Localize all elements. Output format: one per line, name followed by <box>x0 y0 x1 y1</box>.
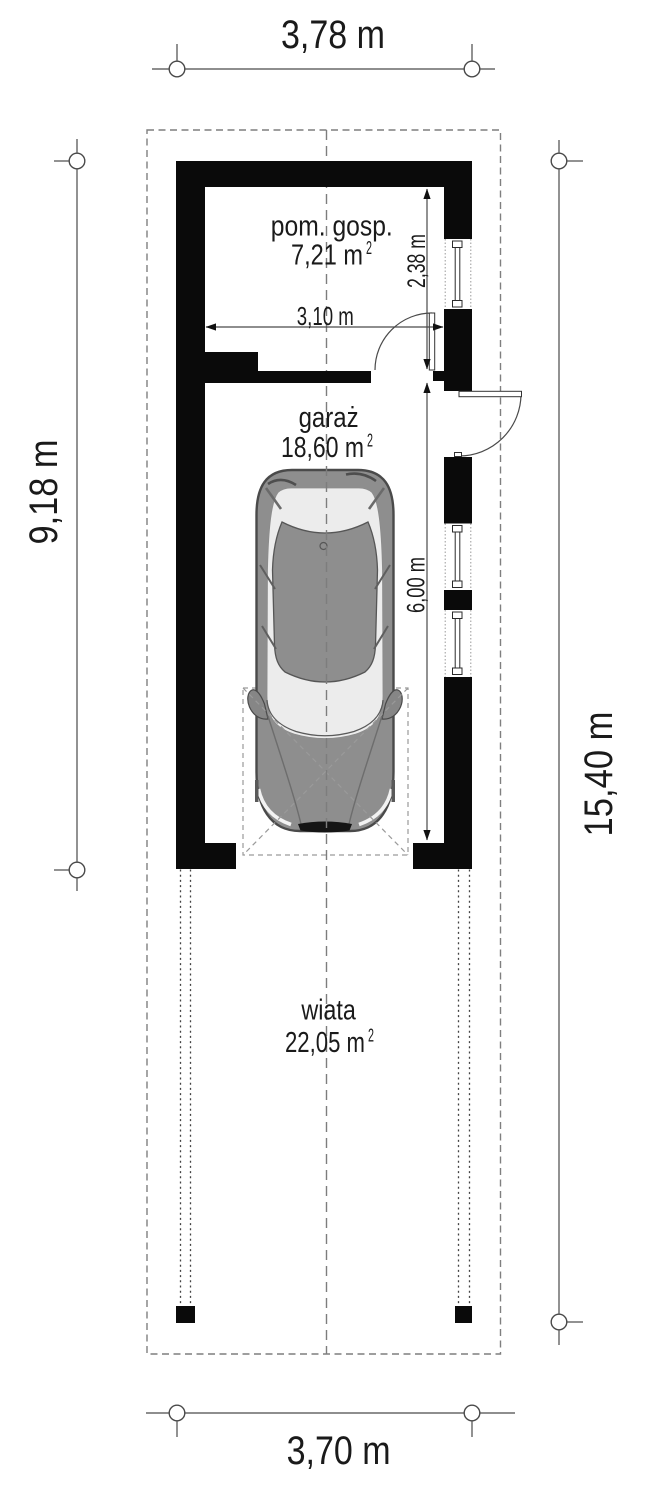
svg-text:3,70 m: 3,70 m <box>287 1429 391 1473</box>
svg-text:3,78 m: 3,78 m <box>281 13 385 57</box>
svg-text:pom. gosp.: pom. gosp. <box>271 211 393 243</box>
svg-text:22,05 m2: 22,05 m2 <box>285 1025 374 1060</box>
svg-text:15,40 m: 15,40 m <box>577 712 621 837</box>
svg-text:18,60 m2: 18,60 m2 <box>281 430 373 465</box>
svg-text:2,38 m: 2,38 m <box>403 234 431 288</box>
svg-text:garaż: garaż <box>299 402 359 434</box>
svg-text:3,10 m: 3,10 m <box>297 301 354 331</box>
svg-text:6,00 m: 6,00 m <box>403 557 431 613</box>
svg-text:9,18 m: 9,18 m <box>22 440 66 545</box>
svg-text:7,21 m2: 7,21 m2 <box>291 237 372 272</box>
svg-text:wiata: wiata <box>301 995 357 1027</box>
